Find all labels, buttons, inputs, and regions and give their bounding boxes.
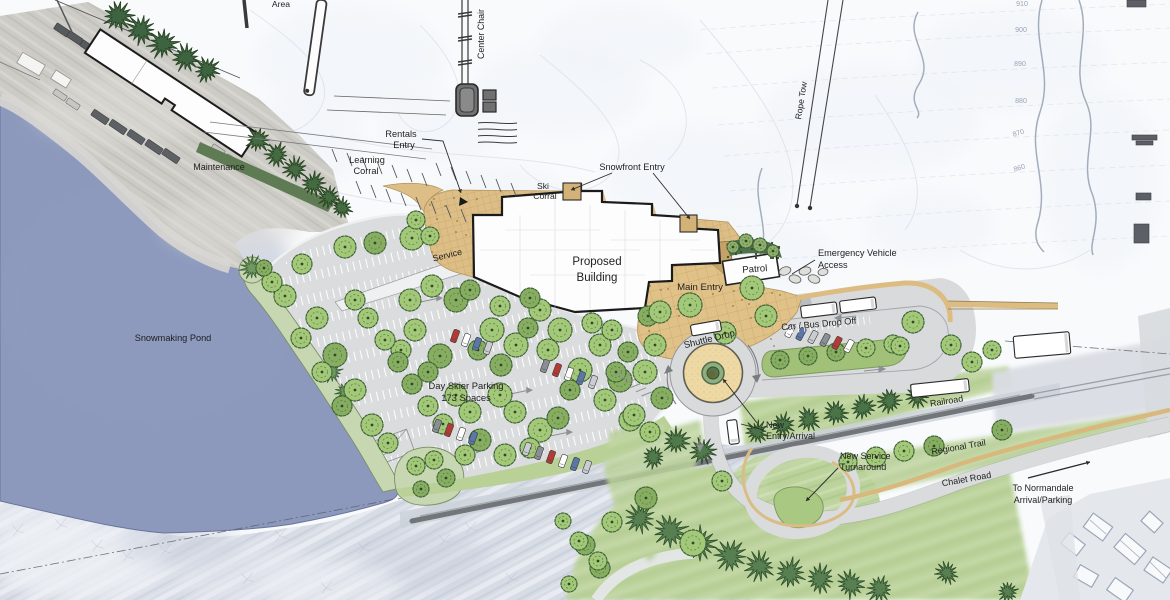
svg-text:900: 900 (1015, 27, 1027, 34)
svg-text:Snowfront Entry: Snowfront Entry (599, 162, 665, 172)
svg-text:880: 880 (1015, 98, 1027, 105)
svg-text:Turnaround: Turnaround (840, 462, 886, 472)
svg-text:Arrival/Parking: Arrival/Parking (1014, 495, 1073, 505)
svg-text:Rentals: Rentals (385, 129, 417, 139)
svg-text:Access: Access (818, 260, 848, 270)
svg-text:Snowmaking Pond: Snowmaking Pond (135, 333, 212, 343)
svg-text:173 Spaces: 173 Spaces (441, 392, 491, 403)
svg-text:Entry: Entry (393, 140, 415, 150)
svg-text:New: New (766, 420, 785, 430)
svg-text:910: 910 (1016, 1, 1028, 8)
svg-text:Corral: Corral (353, 166, 378, 176)
svg-text:Proposed: Proposed (572, 256, 621, 268)
svg-text:Patrol: Patrol (742, 263, 768, 276)
svg-text:890: 890 (1014, 61, 1026, 68)
svg-text:To Normandale: To Normandale (1012, 483, 1073, 493)
svg-text:Building: Building (577, 272, 618, 284)
svg-text:Day Skier Parking: Day Skier Parking (428, 380, 503, 391)
svg-text:Ski: Ski (537, 181, 549, 191)
svg-text:Center Chair: Center Chair (476, 9, 486, 59)
svg-text:Main Entry: Main Entry (677, 282, 723, 293)
svg-text:Area: Area (272, 0, 290, 9)
svg-text:Emergency Vehicle: Emergency Vehicle (818, 248, 897, 258)
svg-text:Entry/Arrival: Entry/Arrival (766, 431, 815, 441)
svg-text:Maintenance: Maintenance (193, 162, 245, 172)
svg-text:New Service: New Service (840, 451, 891, 461)
svg-text:Corral: Corral (533, 191, 556, 201)
svg-text:Learning: Learning (349, 155, 385, 165)
